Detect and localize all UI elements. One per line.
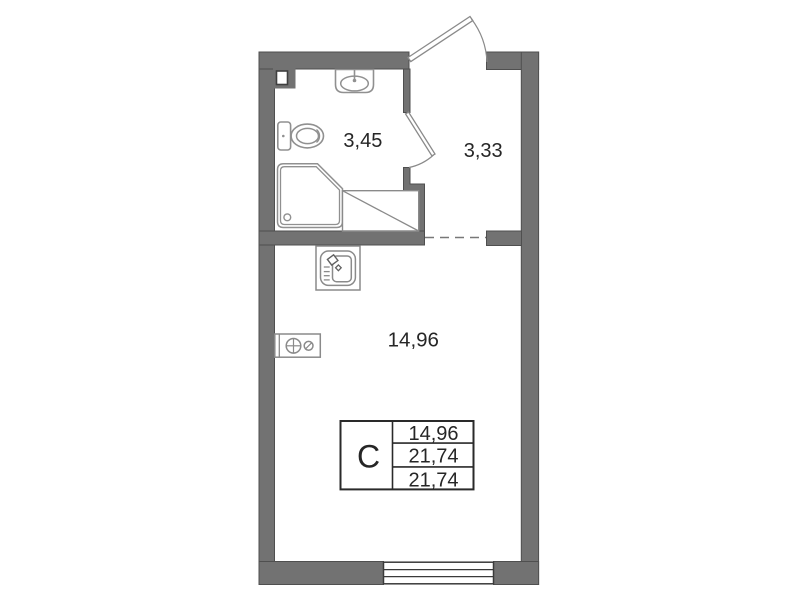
svg-text:21,74: 21,74 <box>408 446 458 468</box>
svg-text:21,74: 21,74 <box>408 469 458 491</box>
svg-text:3,45: 3,45 <box>343 130 382 152</box>
svg-text:С: С <box>357 439 380 475</box>
svg-text:14,96: 14,96 <box>408 423 458 445</box>
svg-text:3,33: 3,33 <box>464 140 503 162</box>
svg-text:14,96: 14,96 <box>388 329 439 352</box>
